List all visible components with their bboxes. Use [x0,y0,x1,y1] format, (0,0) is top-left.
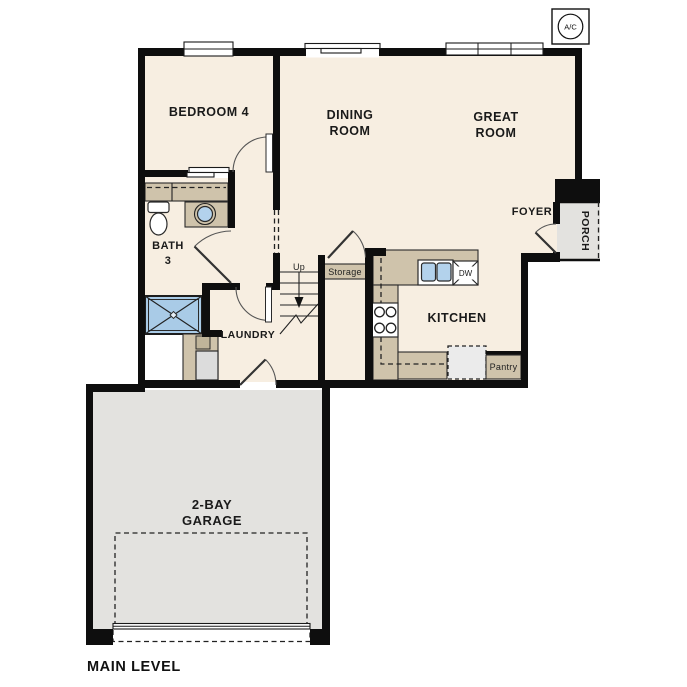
toilet-fixture [148,202,169,235]
bedroom4-label: BEDROOM 4 [169,105,249,119]
floor-plan-drawing: DW Pantry Storage [0,0,687,687]
shower-fixture [145,296,202,334]
laundry-label: LAUNDRY [221,329,275,341]
great-room-window [446,43,543,55]
foyer-label: FOYER [512,206,552,218]
refrigerator-fixture [448,346,486,379]
porch-floor [557,201,600,261]
garage-label-line2: GARAGE [182,513,242,528]
pantry-label: Pantry [490,362,518,372]
dining-sliding-door [305,44,380,58]
vanity-sink-fixture [185,202,228,227]
storage-shelf: Storage [324,264,366,279]
great-room-label-line1: GREAT [473,110,518,124]
porch-label: PORCH [579,211,591,251]
kitchen-sink-fixture [418,260,453,285]
stairs-up-label: Up [293,262,305,272]
bedroom-window [184,42,233,56]
kitchen-label: KITCHEN [427,311,486,325]
dead-space [145,335,183,382]
garage-label-line1: 2-BAY [192,497,232,512]
dishwasher-label: DW [459,269,473,278]
floor-plan: DW Pantry Storage [0,0,687,687]
ac-unit-label: A/C [564,23,577,32]
storage-label: Storage [328,267,362,277]
driveway-apron [113,630,310,642]
bedroom-bypass-door [187,168,229,179]
great-room-label-line2: ROOM [476,126,517,140]
plan-title: MAIN LEVEL [87,659,181,675]
washer-dryer-fixture [183,334,218,382]
range-fixture [372,303,398,337]
bath3-label-line2: 3 [165,255,172,267]
dishwasher-fixture: DW [453,261,478,285]
closet [145,183,228,201]
pantry-cabinet: Pantry [486,351,521,379]
ac-unit-icon: A/C [552,9,589,44]
dining-label-line2: ROOM [330,124,371,138]
bath3-label-line1: BATH [152,240,184,252]
dining-label-line1: DINING [327,108,374,122]
